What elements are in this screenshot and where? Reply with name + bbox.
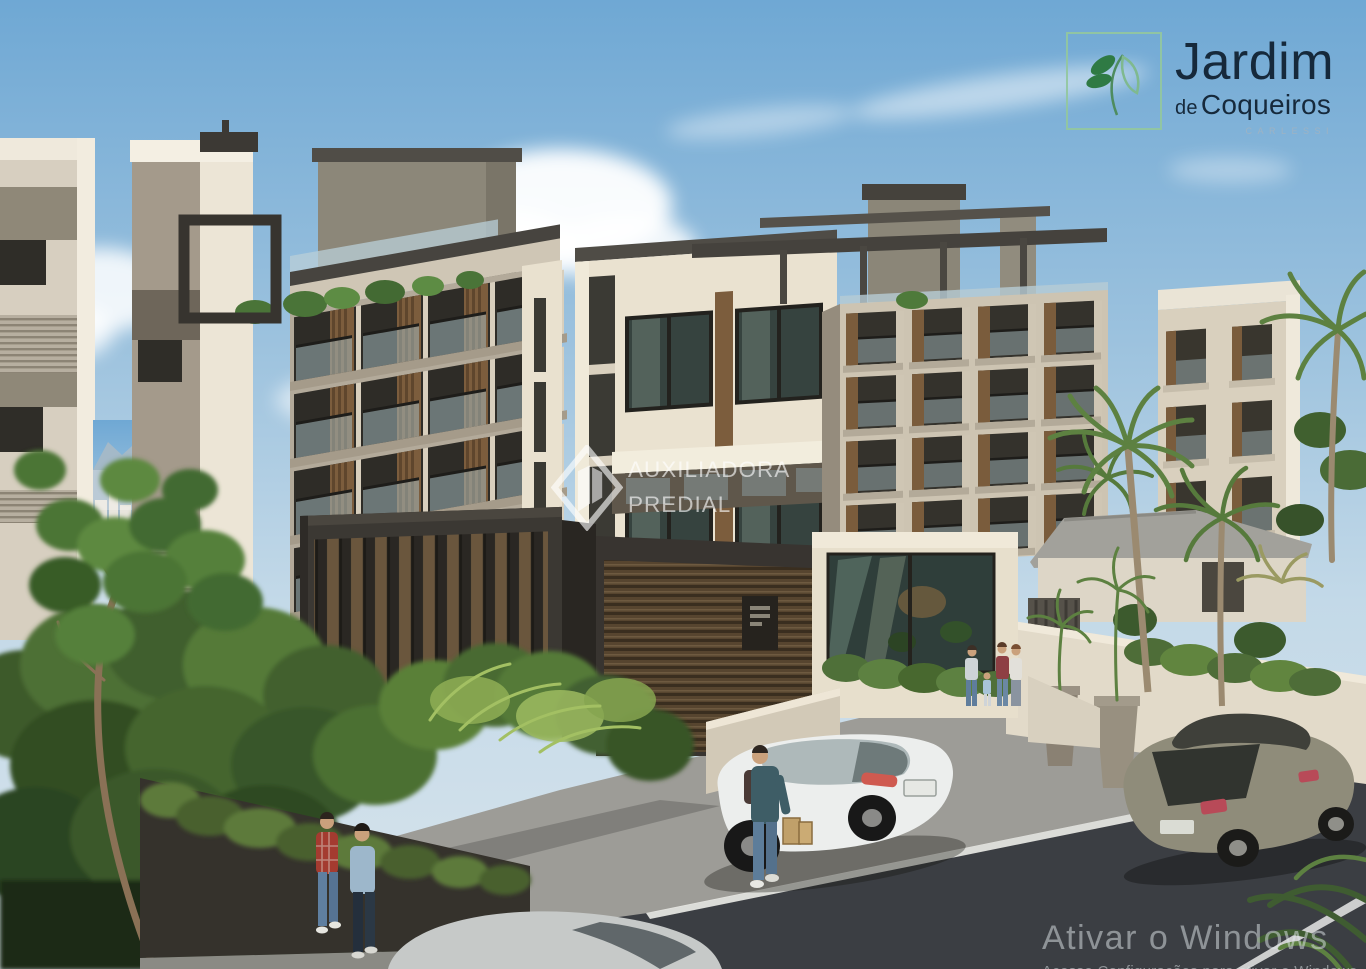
logo-subtitle-main: Coqueiros <box>1201 89 1331 120</box>
logo-subtitle: deCoqueiros <box>1175 89 1334 121</box>
watermark-line1: AUXILIADORA <box>628 452 790 487</box>
developer-logo: Jardim deCoqueiros CARLESSI <box>1066 32 1334 136</box>
watermark-line2: PREDIAL <box>628 487 790 522</box>
building-rear-side <box>822 304 840 572</box>
logo-title: Jardim <box>1175 36 1334 88</box>
logo-subtitle-prefix: de <box>1175 97 1198 119</box>
agency-watermark: AUXILIADORA PREDIAL <box>551 445 790 531</box>
watermark-text: AUXILIADORA PREDIAL <box>628 445 790 531</box>
activation-title: Ativar o Windows <box>1042 919 1357 958</box>
leaf-sprig-icon <box>1079 43 1149 119</box>
windows-activation-watermark: Ativar o Windows Acesse Configurações pa… <box>1042 919 1357 969</box>
diamond-building-icon <box>551 445 623 531</box>
activation-subtitle: Acesse Configurações para ativar o Windo… <box>1042 963 1357 969</box>
logo-tagline: CARLESSI <box>1175 126 1334 136</box>
architectural-rendering: Jardim deCoqueiros CARLESSI AUXILIADORA … <box>0 0 1366 969</box>
logo-frame <box>1066 32 1162 130</box>
logo-text: Jardim deCoqueiros CARLESSI <box>1175 32 1334 136</box>
rooftop-plant <box>896 291 928 309</box>
